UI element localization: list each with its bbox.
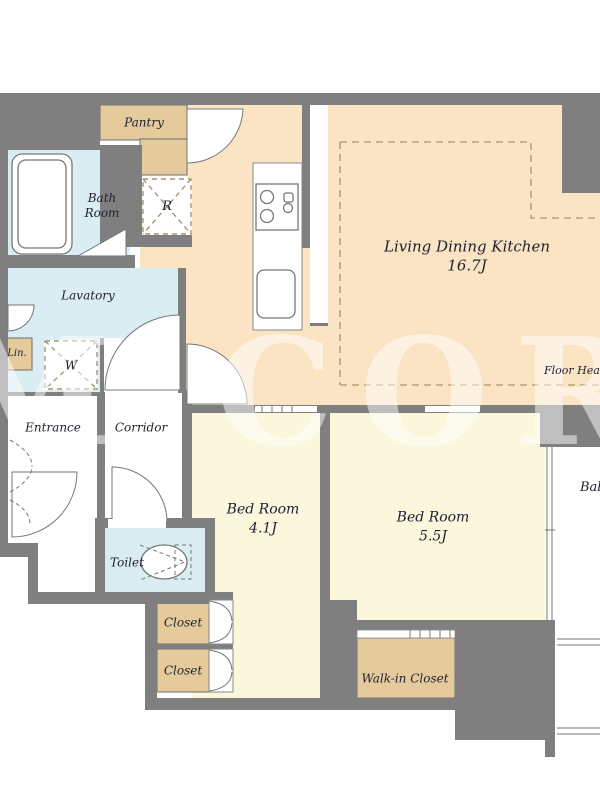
toilet-bowl-icon xyxy=(141,545,187,579)
label-linen: Lin. xyxy=(7,348,26,361)
stove-grill xyxy=(284,193,293,202)
label-bedroom1-size: 4.1J xyxy=(249,520,277,538)
floor-plan: RM CORP Pantry Bath Room R Living Dining… xyxy=(0,0,600,800)
label-bedroom2: Bed Room xyxy=(397,509,470,527)
label-balcony: Balcony xyxy=(580,480,600,496)
wall-segment xyxy=(145,698,470,710)
label-pantry: Pantry xyxy=(124,116,164,131)
stove-burner xyxy=(261,191,274,204)
pantry-area xyxy=(140,139,187,175)
label-closet2: Closet xyxy=(164,664,202,679)
wall-segment xyxy=(95,518,105,604)
closet1-bifold-door xyxy=(209,600,233,644)
toilet-door-opening xyxy=(108,519,166,528)
wall-segment xyxy=(145,604,157,710)
wall-segment xyxy=(205,518,215,604)
walkin-closet-area xyxy=(357,638,455,698)
wall-segment xyxy=(562,105,600,193)
label-toilet: Toilet xyxy=(110,556,144,571)
watermark: RM CORP xyxy=(0,305,600,479)
label-ldk-size: 16.7J xyxy=(447,257,486,276)
wall-segment xyxy=(142,235,192,247)
wall-segment xyxy=(0,93,100,150)
wall-segment xyxy=(302,105,310,248)
label-bath-room: Bath Room xyxy=(85,191,120,221)
stove-burner xyxy=(261,210,274,223)
stove-burner xyxy=(284,204,293,213)
wall-segment xyxy=(320,600,357,700)
label-walkin-closet: Walk-in Closet xyxy=(361,672,448,687)
label-entrance: Entrance xyxy=(25,421,81,436)
kitchen-walkway xyxy=(310,105,328,325)
closet2-bifold-door xyxy=(209,649,233,692)
wall-segment xyxy=(28,543,38,604)
wall-segment xyxy=(0,255,135,268)
label-refrigerator: R xyxy=(162,199,172,215)
label-bedroom1: Bed Room xyxy=(227,501,300,519)
label-corridor: Corridor xyxy=(115,421,167,436)
wall-segment xyxy=(353,620,455,630)
balcony-divider-lines xyxy=(557,639,600,734)
label-washer: W xyxy=(65,359,77,374)
label-closet1: Closet xyxy=(164,616,202,631)
wall-segment xyxy=(545,740,555,757)
bathtub-inner xyxy=(18,160,66,248)
wall-segment xyxy=(28,592,233,604)
label-ldk: Living Dining Kitchen xyxy=(384,238,550,257)
label-bedroom2-size: 5.5J xyxy=(419,528,447,546)
label-lavatory: Lavatory xyxy=(61,289,115,304)
wall-segment xyxy=(455,620,555,740)
wall-segment xyxy=(157,644,233,649)
ldk-floor xyxy=(187,105,562,193)
label-floor-heating: Floor Heating xyxy=(544,364,600,378)
